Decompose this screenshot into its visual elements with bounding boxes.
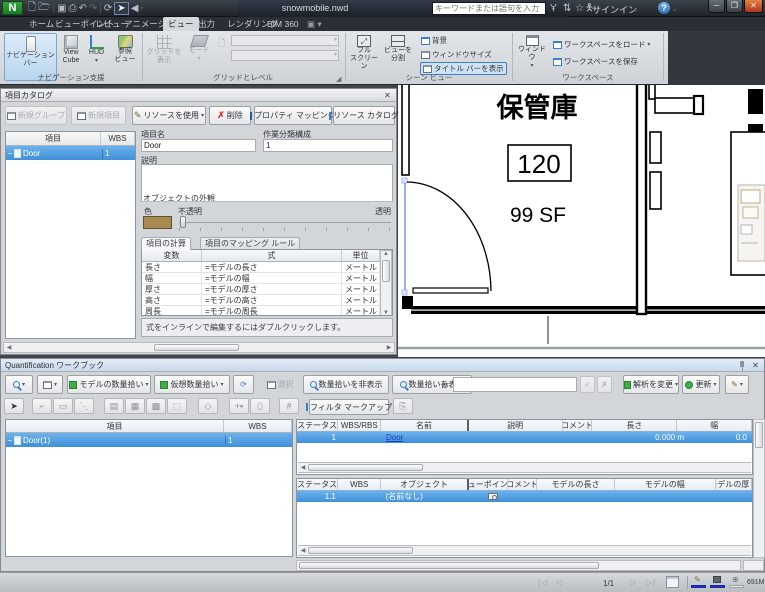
use-resource-button[interactable]: ✎リソースを使用▾ [132, 106, 206, 125]
takeoff-col[interactable]: ステータス [297, 420, 338, 431]
area-rect-tool[interactable]: ▦ [125, 398, 145, 414]
signin-link[interactable]: サインイン [592, 3, 637, 16]
help-icon[interactable]: ? [658, 2, 670, 14]
panel-label-scene-view: シーン ビュー [346, 73, 512, 83]
workbook-close-icon[interactable]: ✕ [750, 360, 761, 371]
wb-expander-icon[interactable]: − [6, 436, 14, 445]
resource-catalog-button[interactable]: リソース カタログ [333, 106, 395, 125]
color-swatch[interactable] [143, 216, 172, 229]
wbs-input[interactable] [263, 139, 393, 152]
ribbon-separator [663, 33, 664, 81]
transparent-label: 透明 [375, 206, 391, 217]
vscroll-thumb[interactable] [382, 260, 390, 282]
refresh-takeoff-button[interactable]: ⟳ [233, 375, 254, 394]
refresh-icon[interactable]: ⟳ [104, 3, 112, 14]
hscroll-thumb[interactable] [154, 344, 239, 351]
viewpoint-camera-icon[interactable] [488, 493, 498, 500]
cancel-formula-button[interactable]: ✗ [597, 376, 612, 393]
full-screen-icon: ⤢ [357, 35, 371, 47]
save-workspace-icon [553, 58, 562, 66]
open-file-icon[interactable]: 🗁 [38, 0, 50, 17]
grid-icon [157, 35, 172, 49]
room-name-label: 保管庫 [496, 93, 578, 123]
tab-item-calculation[interactable]: 項目の計算 [141, 237, 191, 250]
object-col[interactable]: コメント [508, 479, 537, 490]
model-takeoff-icon [69, 381, 77, 389]
opacity-slider-track[interactable] [179, 222, 391, 223]
room-number-label: 120 [517, 149, 560, 179]
level-above-dropdown[interactable]: ▾ [231, 35, 339, 46]
workbook-item-table: 項目 WBS − Door(1) 1 [5, 419, 293, 557]
web-progress-icon: ⊕ [732, 575, 739, 584]
item-sheet-icon [14, 149, 21, 158]
calc-row[interactable]: 長さ=モデルの長さメートル [142, 262, 392, 273]
scroll-left-icon[interactable]: ◀ [298, 547, 308, 554]
hide-takeoff-button[interactable]: 数量拾いを非表示 [303, 375, 389, 394]
calc-table-vscrollbar[interactable]: ▲ ▼ [380, 250, 392, 316]
print-icon[interactable]: ⎙ [69, 3, 77, 14]
appearance-divider [141, 201, 393, 202]
app-menu-button[interactable]: N [2, 1, 23, 15]
restore-button[interactable]: ❐ [726, 0, 743, 13]
calc-row[interactable]: 厚さ=モデルの厚さメートル [142, 284, 392, 295]
navigation-bar-icon [26, 36, 36, 52]
tab-bim360[interactable]: BIM 360 [262, 17, 304, 31]
change-analysis-icon [624, 381, 631, 389]
update-icon [685, 381, 693, 389]
new-item-icon [77, 112, 86, 120]
markup-settings-tool[interactable]: ⎘ [393, 398, 413, 414]
takeoff-col[interactable]: WBS/RBS [338, 420, 381, 431]
window-title: snowmobile.nwd [240, 3, 390, 13]
wb-item-row[interactable]: − Door(1) 1 [6, 433, 292, 447]
resource-catalog-icon [329, 112, 331, 120]
model-takeoff-button[interactable]: モデルの数量拾い▾ [67, 375, 151, 394]
search-input[interactable] [432, 2, 546, 15]
object-col[interactable]: モデルの長さ [537, 479, 614, 490]
application-window: N 🗋 🗁 | ▣ ⎙ ↶ ↷ | ⟳ ➤ ◀ ▾ snowmobile.nwd… [0, 0, 765, 592]
disk-progress-icon [713, 576, 721, 583]
window-size-button[interactable]: ウィンドウサイズ [421, 49, 492, 60]
memory-indicator: 691MB [747, 579, 765, 586]
save-icon[interactable]: ▣ [57, 3, 66, 14]
disk-progress-bar [710, 585, 725, 588]
scene-view-canvas[interactable]: 保管庫 120 99 SF [398, 85, 765, 357]
sheet-page-indicator: 1/1 [603, 579, 614, 588]
scroll-corner [743, 560, 764, 571]
takeoff-col[interactable]: コメント [563, 420, 592, 431]
vscroll-thumb[interactable] [755, 422, 763, 448]
select-icon [267, 381, 276, 389]
exchange-icon[interactable]: ⇅ [563, 2, 571, 15]
area-tool[interactable]: ▤ [104, 398, 124, 414]
count-tool[interactable]: # [279, 398, 299, 414]
app-logo: N [9, 2, 17, 14]
hud-icon [90, 35, 104, 49]
sheet-browser-icon[interactable] [666, 576, 679, 588]
web-progress-bar [729, 585, 744, 588]
titlebar: N 🗋 🗁 | ▣ ⎙ ↶ ↷ | ⟳ ➤ ◀ ▾ snowmobile.nwd… [0, 0, 765, 17]
floor-plan-drawing: 保管庫 120 99 SF [398, 85, 765, 357]
object-col[interactable]: ビューポイント [469, 479, 508, 490]
new-item-button[interactable]: 新規項目 [71, 106, 126, 125]
virtual-takeoff-icon [160, 381, 168, 389]
marquee-tool[interactable]: ⬚ [167, 398, 187, 414]
next-sheet-icon[interactable]: ▷ [630, 578, 636, 587]
rectangle-tool[interactable]: ▭ [53, 398, 73, 414]
item-catalog-panel: 項目カタログ ✕ 新規グループ 新規項目 ✎リソースを使用▾ ✗削除 プロパティ… [0, 88, 397, 355]
takeoff-view-dropdown[interactable]: ▾ [5, 375, 33, 394]
prev-sheet-icon[interactable]: ◁ [556, 578, 562, 587]
area-poly-tool[interactable]: ▩ [146, 398, 166, 414]
windows-icon [526, 35, 539, 46]
close-button[interactable]: ✕ [744, 0, 763, 13]
markup-select-tool[interactable]: ➤ [4, 398, 24, 414]
takeoff-col[interactable]: 名前 [381, 420, 468, 431]
workbook-title: Quantification ワークブック [1, 359, 764, 372]
filter-markup-icon [306, 403, 308, 411]
level-sheet-icon: 🗋 [218, 36, 225, 52]
save-workspace-button[interactable]: ワークスペースを保存 [553, 56, 638, 67]
tree-col-wbs[interactable]: WBS [101, 132, 135, 145]
virtual-takeoff-button[interactable]: 仮想数量拾い▾ [154, 375, 230, 394]
property-mapping-icon [250, 112, 252, 120]
wb-sheet-icon [14, 436, 21, 445]
object-col[interactable]: モデルの厚さ [716, 479, 752, 490]
tree-col-item[interactable]: 項目 [6, 132, 101, 145]
last-sheet-icon[interactable]: ▷∣ [646, 578, 656, 587]
fx-label: ƒx [441, 380, 449, 389]
workbook-vscrollbar[interactable] [753, 419, 765, 558]
window-size-icon [421, 51, 430, 59]
workbook-pin-icon[interactable] [737, 361, 746, 370]
background-button[interactable]: 背景 [421, 35, 447, 46]
export-dropdown[interactable]: ✎▾ [725, 375, 749, 394]
property-mapping-button[interactable]: プロパティ マッピング [254, 106, 332, 125]
polyline-tool[interactable]: ⌐ [32, 398, 52, 414]
ribbon-tab-bar: ホーム ビューポイント レビュー アニメーション ビュー 出力 レンダリング B… [0, 17, 765, 31]
grid-mode-icon [190, 35, 209, 47]
new-file-icon[interactable]: 🗋 [28, 0, 36, 17]
new-group-icon [7, 112, 16, 120]
select-tool-icon[interactable]: ➤ [114, 2, 128, 15]
calc-table: 変数 式 単位 長さ=モデルの長さメートル 幅=モデルの幅メートル 厚さ=モデル… [141, 249, 393, 316]
item-name-input[interactable] [141, 139, 256, 152]
wb-col-wbs[interactable]: WBS [224, 420, 292, 432]
background-icon [421, 37, 430, 45]
calc-col-unit[interactable]: 単位 [342, 250, 380, 261]
panel-expand-icon[interactable]: ◢ [336, 75, 341, 83]
panel-label-navigation-aids: ナビゲーション支援 [0, 73, 142, 83]
reference-views-icon [118, 35, 133, 48]
delete-x-icon: ✗ [217, 110, 225, 121]
item-catalog-close-icon[interactable]: ✕ [382, 90, 393, 101]
statusbar: ∣◁ ◁ 1/1 ▷ ▷∣ ✎ ⊕ 691MB [0, 572, 765, 592]
quick-access-toolbar: 🗋 🗁 | ▣ ⎙ ↶ ↷ | ⟳ ➤ ◀ ▾ [27, 2, 144, 15]
object-col[interactable]: モデルの幅 [615, 479, 716, 490]
room-area-label: 99 SF [510, 204, 566, 227]
ribbon-separator [142, 33, 143, 81]
object-table: ステータス WBS オブジェクト ビューポイント コメント モデルの長さ モデル… [296, 478, 753, 558]
calc-row[interactable]: 幅=モデルの幅メートル [142, 273, 392, 284]
first-sheet-icon[interactable]: ∣◁ [537, 578, 547, 587]
change-analysis-button[interactable]: 解析を変更▾ [623, 375, 679, 394]
catalog-tree: 項目 WBS − Door 1 [5, 131, 136, 339]
takeoff-table: ステータス WBS/RBS 名前 説明 コメント 長さ 幅 1 Door 0.0… [296, 419, 753, 475]
door-link[interactable]: Door [386, 433, 403, 442]
bucket-fill-tool[interactable]: ◇ [198, 398, 218, 414]
scroll-left-icon[interactable]: ◀ [4, 344, 14, 351]
hscroll-thumb[interactable] [299, 562, 599, 569]
delete-button[interactable]: ✗削除 [209, 106, 251, 125]
calc-col-formula[interactable]: 式 [202, 250, 342, 261]
hide-takeoff-icon [310, 381, 317, 388]
quantification-workbook-panel: Quantification ワークブック ✕ ▾ ▾ モデルの数量拾い▾ 仮想… [0, 358, 765, 572]
calc-row[interactable]: 高さ=モデルの高さメートル [142, 295, 392, 306]
wb-col-item[interactable]: 項目 [6, 420, 224, 432]
formula-input[interactable] [453, 377, 577, 392]
add-point-tool[interactable]: +▪ [229, 398, 249, 414]
measure-tool[interactable]: ⋱ [74, 398, 94, 414]
calc-hint: 式をインラインで編集するにはダブルクリックします。 [141, 318, 393, 337]
takeoff-col[interactable]: 長さ [592, 420, 677, 431]
layout-dropdown[interactable]: ▾ [37, 375, 63, 394]
object-col[interactable]: ステータス [297, 479, 338, 490]
takeoff-row[interactable]: 1 Door 0.000 m 0.0 [297, 432, 752, 443]
resource-pen-icon: ✎ [134, 110, 142, 121]
pencil-progress-icon: ✎ [694, 575, 701, 584]
calc-col-variable[interactable]: 変数 [142, 250, 202, 261]
slider-ticks [179, 228, 391, 231]
load-workspace-icon [553, 41, 562, 49]
catalog-hscrollbar[interactable]: ◀ ▶ [3, 342, 395, 353]
level-below-dropdown[interactable]: ▾ [231, 50, 339, 61]
calc-row[interactable]: 周長=モデルの周長メートル [142, 306, 392, 316]
back-icon[interactable]: ◀ [131, 3, 139, 14]
ribbon: ナビゲーション バー View Cube HUD▾ 参照 ビュー ナビゲーション… [0, 31, 765, 85]
tab-output[interactable]: 出力 [193, 17, 220, 31]
search-binoculars-icon[interactable]: 🝁 [550, 2, 557, 15]
undo-icon[interactable]: ↶ [79, 3, 87, 14]
hscroll-thumb[interactable] [308, 547, 413, 554]
appearance-label: オブジェクトの外観 [143, 193, 215, 204]
split-view-icon [391, 35, 405, 47]
takeoff-hscrollbar[interactable]: ◀ [298, 462, 751, 473]
scroll-right-icon[interactable]: ▶ [384, 344, 394, 351]
update-button[interactable]: 更新▾ [682, 375, 720, 394]
view-cube-icon [64, 35, 78, 49]
tree-expander-icon[interactable]: − [6, 149, 14, 158]
pencil-progress-bar [691, 585, 706, 588]
panel-label-workspace: ワークスペース [513, 73, 663, 83]
hscroll-thumb[interactable] [308, 464, 423, 471]
tree-row-door[interactable]: − Door 1 [6, 146, 135, 160]
qat-dropdown-icon[interactable]: ▾ [140, 5, 143, 12]
accept-formula-button[interactable]: ✓ [580, 376, 595, 393]
object-col[interactable]: オブジェクト [381, 479, 468, 490]
item-catalog-title: 項目カタログ [1, 89, 396, 102]
object-col[interactable]: WBS [338, 479, 381, 490]
title-bars-icon [423, 65, 432, 73]
object-hscrollbar[interactable]: ◀ [298, 545, 751, 556]
favorites-star-icon[interactable]: ☆ [575, 2, 584, 15]
object-row[interactable]: 1.1 (名前なし) [297, 491, 752, 502]
opacity-slider-thumb[interactable] [180, 216, 186, 228]
minimize-button[interactable]: ─ [708, 0, 725, 13]
takeoff-col[interactable]: 幅 [677, 420, 752, 431]
eraser-tool[interactable]: ⬯ [250, 398, 270, 414]
markup-toolbar: ➤ ⌐ ▭ ⋱ ▤ ▦ ▩ ⬚ ◇ +▪ ⬯ # フィルタ マークアップ ⎘ [1, 398, 765, 416]
statusbar-divider [687, 576, 688, 589]
takeoff-col[interactable]: 説明 [469, 420, 563, 431]
workbook-hscrollbar[interactable] [296, 560, 741, 571]
filter-markup-button[interactable]: フィルタ マークアップ [309, 399, 389, 415]
load-workspace-button[interactable]: ワークスペースをロード▾ [553, 39, 650, 50]
new-group-button[interactable]: 新規グループ [5, 106, 67, 125]
ribbon-display-options-icon[interactable]: ▣ ▾ [302, 17, 327, 31]
show-takeoff-icon [400, 381, 407, 388]
panel-label-grids-levels: グリッドとレベル [145, 73, 341, 83]
scroll-left-icon[interactable]: ◀ [298, 464, 308, 471]
scroll-up-icon[interactable]: ▲ [381, 251, 391, 257]
select-button[interactable]: 選択 [261, 375, 299, 394]
ribbon-empty-area [668, 31, 765, 85]
redo-icon[interactable]: ↷ [89, 3, 97, 14]
